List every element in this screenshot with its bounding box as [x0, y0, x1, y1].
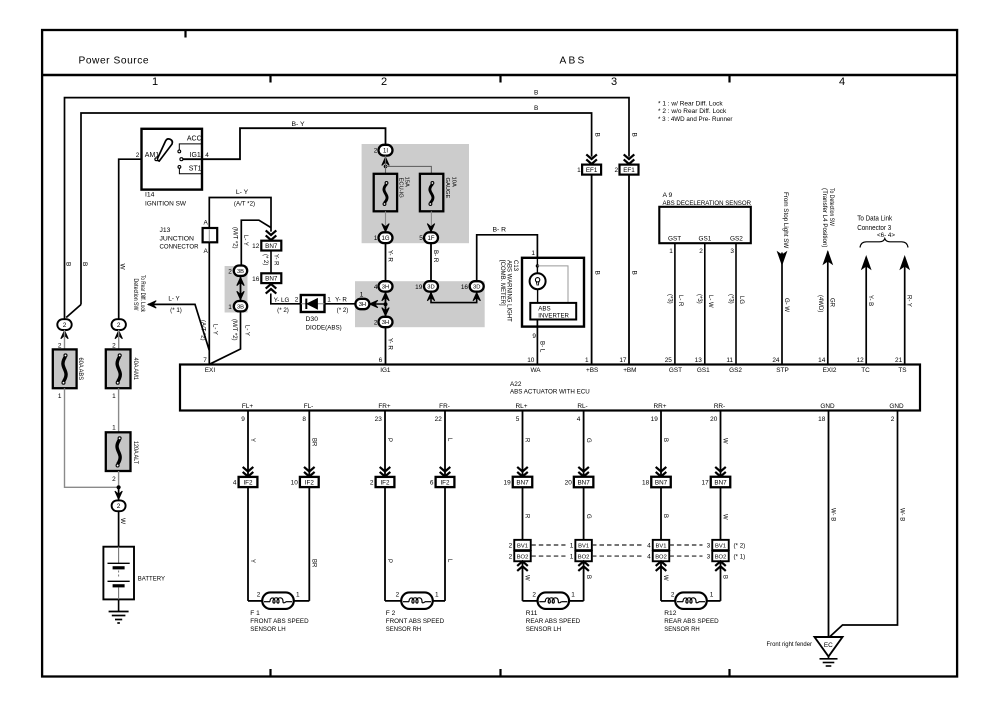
svg-text:2: 2 [374, 320, 378, 327]
svg-text:W- B: W- B [830, 508, 836, 521]
svg-text:IF2: IF2 [380, 479, 390, 486]
svg-text:(*3): (*3) [696, 294, 702, 304]
svg-text:GS1: GS1 [699, 236, 712, 243]
svg-text:F 1: F 1 [250, 610, 260, 617]
svg-text:RL+: RL+ [516, 403, 528, 410]
svg-text:EXI2: EXI2 [823, 367, 837, 374]
svg-text:G: G [585, 514, 591, 519]
svg-text:3: 3 [611, 76, 617, 88]
svg-text:(* 2): (* 2) [262, 254, 268, 265]
svg-text:4: 4 [647, 543, 651, 550]
svg-text:G- W: G- W [783, 298, 789, 312]
svg-text:REAR ABS SPEED: REAR ABS SPEED [664, 618, 719, 625]
svg-text:BO2: BO2 [655, 554, 667, 560]
svg-text:2: 2 [396, 591, 400, 598]
svg-text:60A ABS: 60A ABS [77, 358, 84, 381]
svg-text:BR: BR [310, 438, 316, 447]
svg-text:Y- R: Y- R [335, 296, 347, 303]
svg-text:SENSOR LH: SENSOR LH [250, 626, 286, 633]
svg-text:BN7: BN7 [516, 479, 529, 486]
svg-text:3B: 3B [237, 304, 244, 310]
svg-text:3H: 3H [382, 320, 389, 326]
svg-text:1: 1 [152, 76, 158, 88]
svg-text:1: 1 [112, 393, 116, 400]
svg-text:BN7: BN7 [714, 479, 727, 486]
svg-text:2: 2 [615, 167, 619, 174]
svg-text:ABS: ABS [560, 56, 587, 67]
svg-text:BN7: BN7 [265, 276, 278, 283]
svg-text:1: 1 [531, 250, 535, 257]
svg-text:B- R: B- R [493, 227, 507, 234]
svg-text:GS1: GS1 [697, 367, 710, 374]
svg-text:CONNECTOR: CONNECTOR [160, 244, 199, 251]
svg-text:1: 1 [577, 167, 581, 174]
svg-text:16: 16 [461, 284, 469, 291]
svg-text:Y: Y [249, 438, 255, 442]
svg-text:1: 1 [327, 297, 331, 304]
svg-text:REAR ABS SPEED: REAR ABS SPEED [526, 618, 581, 625]
svg-text:IF2: IF2 [305, 479, 315, 486]
svg-text:EC: EC [824, 642, 833, 649]
svg-text:GST: GST [669, 367, 682, 374]
svg-text:W- B: W- B [899, 508, 905, 521]
svg-text:<6- 4>: <6- 4> [877, 232, 895, 239]
svg-text:Y- LG: Y- LG [274, 297, 290, 304]
svg-text:3D: 3D [427, 285, 434, 291]
svg-text:A: A [204, 219, 209, 226]
svg-text:(A/T *2): (A/T *2) [234, 200, 255, 207]
svg-text:5: 5 [516, 416, 520, 423]
svg-text:R11: R11 [526, 610, 538, 617]
svg-text:JUNCTION: JUNCTION [160, 235, 195, 242]
svg-text:SENSOR LH: SENSOR LH [526, 626, 562, 633]
svg-text:BN7: BN7 [265, 243, 278, 250]
svg-text:A: A [204, 248, 209, 255]
svg-text:TC: TC [861, 367, 870, 374]
svg-text:9: 9 [241, 416, 245, 423]
svg-text:1: 1 [710, 591, 714, 598]
svg-text:6: 6 [430, 480, 434, 487]
svg-text:B: B [534, 105, 538, 112]
svg-text:Y- R: Y- R [272, 254, 278, 266]
svg-text:4: 4 [374, 284, 378, 291]
svg-text:B: B [662, 514, 668, 518]
svg-text:1: 1 [669, 248, 673, 255]
svg-text:1: 1 [571, 591, 575, 598]
svg-text:2: 2 [509, 554, 513, 561]
svg-text:4: 4 [577, 416, 581, 423]
svg-text:4: 4 [233, 480, 237, 487]
svg-text:IG1: IG1 [190, 152, 201, 159]
svg-text:RR-: RR- [714, 403, 725, 410]
svg-text:2: 2 [117, 503, 121, 510]
svg-text:I14: I14 [145, 192, 155, 199]
svg-text:2: 2 [112, 476, 116, 483]
svg-text:GAUGE: GAUGE [444, 178, 450, 199]
svg-text:C13: C13 [512, 260, 518, 272]
svg-text:Y- R: Y- R [386, 250, 393, 262]
svg-text:INVERTER: INVERTER [538, 313, 569, 320]
svg-text:Y- B: Y- B [867, 295, 873, 306]
svg-text:GS2: GS2 [730, 236, 743, 243]
svg-text:5: 5 [419, 235, 423, 242]
svg-text:+BM: +BM [623, 367, 636, 374]
svg-text:Y- R: Y- R [386, 338, 393, 350]
svg-text:W: W [662, 575, 668, 581]
svg-text:TS: TS [898, 367, 906, 374]
svg-text:W: W [119, 518, 126, 525]
svg-text:1: 1 [570, 554, 574, 561]
svg-text:GS2: GS2 [729, 367, 742, 374]
svg-text:B: B [81, 262, 88, 266]
svg-text:B: B [722, 575, 728, 579]
svg-text:2: 2 [295, 297, 299, 304]
svg-text:2: 2 [532, 591, 536, 598]
svg-text:L- R: L- R [677, 295, 683, 307]
svg-text:BN7: BN7 [577, 479, 590, 486]
svg-text:1G: 1G [381, 236, 389, 242]
svg-text:* 2 : w/o Rear Diff. Lock: * 2 : w/o Rear Diff. Lock [658, 108, 727, 115]
svg-text:22: 22 [435, 416, 443, 423]
svg-text:(Transfer L4 Position): (Transfer L4 Position) [821, 188, 828, 248]
svg-text:G: G [585, 438, 591, 443]
svg-text:Front right fender: Front right fender [767, 641, 813, 648]
svg-text:17: 17 [702, 480, 710, 487]
svg-text:Power Source: Power Source [79, 56, 150, 67]
svg-text:4: 4 [205, 152, 209, 159]
svg-text:12: 12 [252, 243, 260, 250]
svg-text:10: 10 [291, 480, 299, 487]
svg-text:10: 10 [527, 357, 535, 364]
svg-text:2: 2 [699, 248, 703, 255]
svg-text:To Detection SW: To Detection SW [828, 188, 835, 226]
svg-text:P: P [386, 438, 392, 442]
svg-text:1: 1 [570, 543, 574, 550]
svg-text:15A: 15A [404, 177, 410, 187]
svg-text:W: W [722, 438, 728, 444]
svg-text:FRONT ABS SPEED: FRONT ABS SPEED [250, 618, 309, 625]
svg-text:L- Y: L- Y [168, 295, 179, 302]
svg-text:STP: STP [776, 367, 788, 374]
svg-text:+BS: +BS [586, 367, 598, 374]
svg-text:2: 2 [671, 591, 675, 598]
svg-text:2: 2 [257, 591, 261, 598]
svg-text:13: 13 [695, 357, 703, 364]
svg-text:4: 4 [839, 76, 845, 88]
svg-text:IGNITION SW: IGNITION SW [145, 200, 187, 207]
svg-text:BV1: BV1 [578, 543, 589, 549]
svg-text:SENSOR RH: SENSOR RH [386, 626, 422, 633]
svg-text:1: 1 [296, 591, 300, 598]
svg-text:(M/T *2): (M/T *2) [232, 227, 238, 249]
svg-text:W: W [722, 514, 728, 520]
svg-text:11: 11 [726, 357, 733, 364]
svg-text:2: 2 [374, 148, 378, 155]
svg-text:1: 1 [435, 591, 439, 598]
svg-text:L- Y: L- Y [242, 235, 248, 246]
svg-text:A 9: A 9 [663, 192, 673, 199]
svg-text:40A AM1: 40A AM1 [132, 358, 139, 381]
svg-text:(* 1): (* 1) [734, 554, 746, 561]
svg-text:3B: 3B [237, 269, 244, 275]
svg-text:1: 1 [58, 393, 62, 400]
svg-text:ST1: ST1 [189, 166, 202, 173]
svg-text:14: 14 [818, 357, 826, 364]
svg-text:9: 9 [532, 333, 536, 340]
svg-text:B: B [662, 438, 668, 442]
svg-text:16: 16 [252, 276, 260, 283]
svg-text:GST: GST [668, 236, 681, 243]
svg-text:1: 1 [585, 357, 589, 364]
svg-text:W: W [524, 575, 530, 581]
svg-text:3: 3 [707, 543, 711, 550]
svg-text:R- Y: R- Y [906, 295, 912, 307]
svg-text:2: 2 [381, 76, 387, 88]
svg-text:19: 19 [504, 480, 512, 487]
svg-text:12: 12 [857, 357, 865, 364]
svg-text:2: 2 [891, 416, 895, 423]
svg-text:GR: GR [829, 298, 835, 308]
svg-text:2: 2 [370, 480, 374, 487]
svg-text:IG1: IG1 [380, 367, 391, 374]
svg-text:FL-: FL- [304, 403, 314, 410]
svg-text:GND: GND [889, 403, 904, 410]
svg-text:R: R [524, 514, 530, 519]
svg-text:3: 3 [707, 554, 711, 561]
svg-text:1F: 1F [427, 236, 434, 242]
svg-text:R: R [524, 438, 530, 443]
svg-text:L- Y: L- Y [236, 189, 249, 196]
svg-text:* 3 : 4WD and Pre- Runner: * 3 : 4WD and Pre- Runner [658, 116, 733, 123]
svg-text:To Data Link: To Data Link [857, 216, 892, 223]
svg-text:ACC: ACC [187, 136, 202, 143]
svg-text:BO2: BO2 [517, 554, 529, 560]
svg-text:1: 1 [228, 304, 232, 311]
svg-text:(* 2): (* 2) [277, 307, 289, 314]
svg-text:* 1 : w/ Rear Diff. Lock: * 1 : w/ Rear Diff. Lock [658, 101, 724, 108]
svg-text:W: W [119, 264, 126, 271]
svg-text:120A ALT: 120A ALT [132, 441, 139, 464]
svg-text:19: 19 [651, 416, 659, 423]
svg-text:2: 2 [509, 543, 513, 550]
svg-text:(* 2): (* 2) [337, 307, 349, 314]
svg-text:(*3): (*3) [727, 294, 733, 304]
svg-text:20: 20 [710, 416, 718, 423]
svg-text:(4WD): (4WD) [817, 295, 823, 312]
svg-text:23: 23 [375, 416, 383, 423]
svg-text:IF2: IF2 [243, 479, 253, 486]
svg-text:21: 21 [895, 357, 903, 364]
svg-text:B: B [64, 262, 71, 266]
svg-text:24: 24 [772, 357, 780, 364]
svg-text:BATTERY: BATTERY [138, 576, 166, 583]
svg-text:BN7: BN7 [655, 479, 668, 486]
svg-text:DIODE(ABS): DIODE(ABS) [306, 324, 342, 331]
svg-text:3D: 3D [473, 285, 480, 291]
svg-text:Detection SW: Detection SW [132, 279, 139, 311]
svg-text:[COMB. METER]: [COMB. METER] [499, 260, 505, 306]
svg-text:(*3): (*3) [666, 294, 672, 304]
svg-text:FR-: FR- [439, 403, 450, 410]
svg-text:ABS: ABS [538, 305, 550, 312]
svg-text:B: B [631, 133, 638, 137]
svg-text:B: B [534, 89, 538, 96]
svg-text:2: 2 [228, 268, 232, 275]
svg-text:BV1: BV1 [715, 543, 726, 549]
svg-text:(* 2): (* 2) [734, 543, 746, 550]
svg-text:RR+: RR+ [654, 403, 667, 410]
svg-text:FR+: FR+ [378, 403, 391, 410]
svg-text:2: 2 [63, 322, 67, 329]
svg-text:4: 4 [647, 554, 651, 561]
svg-text:B- R: B- R [432, 250, 439, 263]
svg-text:B- L: B- L [538, 341, 545, 353]
svg-text:B: B [585, 575, 591, 579]
svg-text:3H: 3H [359, 302, 366, 308]
svg-text:6: 6 [379, 357, 383, 364]
svg-text:1: 1 [112, 425, 116, 432]
svg-text:B: B [593, 271, 600, 275]
svg-text:D30: D30 [306, 316, 319, 323]
svg-text:EF1: EF1 [586, 167, 598, 174]
svg-text:18: 18 [642, 480, 650, 487]
svg-text:EF1: EF1 [623, 167, 635, 174]
svg-text:L- Y: L- Y [212, 324, 218, 335]
svg-text:25: 25 [665, 357, 673, 364]
svg-text:IF2: IF2 [440, 479, 450, 486]
svg-text:17: 17 [619, 357, 627, 364]
svg-text:BV1: BV1 [656, 543, 667, 549]
svg-text:BO2: BO2 [715, 554, 727, 560]
svg-text:8: 8 [302, 416, 306, 423]
svg-text:3: 3 [730, 248, 734, 255]
svg-text:Y: Y [249, 559, 255, 563]
svg-text:20: 20 [565, 480, 573, 487]
svg-text:EXI: EXI [205, 367, 216, 374]
svg-text:(* 1): (* 1) [170, 307, 182, 314]
svg-text:FRONT ABS SPEED: FRONT ABS SPEED [386, 618, 445, 625]
svg-text:ABS ACTUATOR WITH ECU: ABS ACTUATOR WITH ECU [510, 389, 590, 396]
svg-text:BV1: BV1 [517, 543, 528, 549]
svg-text:RL-: RL- [577, 403, 587, 410]
svg-text:7: 7 [203, 357, 207, 364]
svg-text:R12: R12 [664, 610, 676, 617]
svg-text:SENSOR RH: SENSOR RH [664, 626, 700, 633]
svg-text:F 2: F 2 [386, 610, 396, 617]
svg-text:WA: WA [531, 367, 542, 374]
svg-text:B- Y: B- Y [292, 121, 306, 128]
svg-text:J13: J13 [160, 227, 171, 234]
svg-text:BR: BR [310, 559, 316, 568]
svg-text:ABS WARNING LIGHT: ABS WARNING LIGHT [505, 260, 511, 322]
svg-text:3H: 3H [382, 285, 389, 291]
svg-text:2: 2 [136, 152, 140, 159]
svg-text:FL+: FL+ [242, 403, 253, 410]
svg-text:18: 18 [818, 416, 826, 423]
svg-text:A22: A22 [510, 381, 522, 388]
svg-text:L- W: L- W [707, 295, 713, 308]
svg-text:10A: 10A [450, 177, 456, 187]
svg-text:1: 1 [374, 235, 378, 242]
svg-text:LG: LG [738, 296, 744, 304]
svg-text:L- Y: L- Y [243, 325, 249, 336]
svg-text:B: B [631, 271, 638, 275]
svg-text:GND: GND [820, 403, 835, 410]
svg-text:1I: 1I [383, 148, 388, 154]
svg-text:ECU-IG: ECU-IG [397, 178, 403, 199]
svg-text:1: 1 [360, 292, 364, 299]
svg-text:2: 2 [117, 322, 121, 329]
svg-text:BO2: BO2 [578, 554, 590, 560]
svg-text:(M/T *2): (M/T *2) [231, 319, 237, 341]
svg-text:B: B [593, 133, 600, 137]
svg-text:P: P [386, 559, 392, 563]
svg-text:From Stop Light SW: From Stop Light SW [782, 192, 789, 248]
svg-text:19: 19 [415, 284, 423, 291]
